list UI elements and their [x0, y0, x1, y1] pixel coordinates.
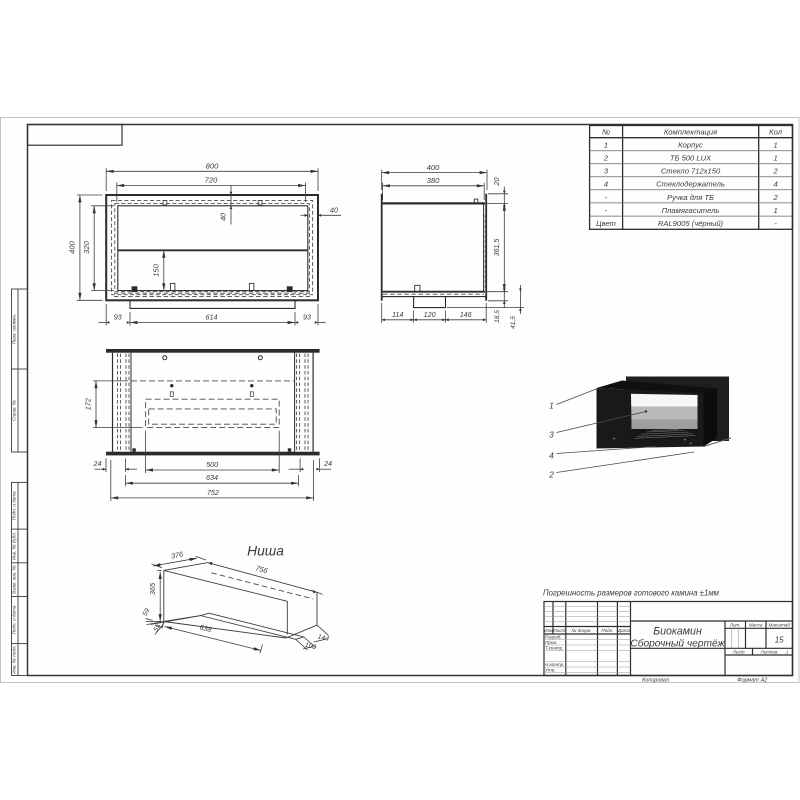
svg-text:Подп. и дата: Подп. и дата [12, 605, 17, 634]
svg-text:2: 2 [772, 167, 778, 176]
svg-text:41,5: 41,5 [510, 316, 517, 329]
svg-text:Корпус: Корпус [678, 141, 703, 150]
svg-text:Ручка для ТБ: Ручка для ТБ [667, 193, 714, 202]
svg-text:Формат: Формат [737, 678, 759, 684]
svg-text:Пламягаситель: Пламягаситель [662, 206, 720, 215]
svg-text:114: 114 [392, 310, 403, 319]
svg-text:Биокамин: Биокамин [653, 626, 702, 638]
svg-text:1: 1 [604, 141, 608, 150]
svg-text:24: 24 [323, 459, 332, 468]
svg-text:Справ. №: Справ. № [12, 400, 17, 421]
svg-text:Подп. и дата: Подп. и дата [12, 491, 17, 520]
svg-text:Масштаб: Масштаб [768, 622, 790, 627]
svg-text:Стеклодержатель: Стеклодержатель [656, 180, 725, 189]
svg-text:RAL9005 (чёрный): RAL9005 (чёрный) [658, 219, 724, 228]
svg-text:1: 1 [786, 649, 789, 654]
svg-text:4: 4 [773, 180, 777, 189]
svg-text:Листов: Листов [760, 649, 778, 654]
svg-text:120: 120 [424, 310, 436, 319]
svg-text:Дата: Дата [617, 628, 631, 633]
svg-text:24: 24 [93, 459, 102, 468]
svg-text:Разраб.: Разраб. [545, 635, 562, 640]
svg-text:Погрешность размеров готового: Погрешность размеров готового камина ±1м… [543, 589, 720, 598]
svg-text:1: 1 [773, 206, 777, 215]
svg-text:Пров.: Пров. [545, 640, 557, 645]
svg-text:4: 4 [549, 451, 554, 461]
svg-text:2: 2 [603, 154, 609, 163]
svg-text:Т.контр.: Т.контр. [545, 646, 564, 651]
svg-text:Копировал: Копировал [642, 678, 669, 684]
svg-text:365: 365 [148, 582, 157, 595]
svg-text:Лит.: Лит. [729, 622, 741, 627]
svg-text:361,5: 361,5 [494, 239, 501, 257]
svg-text:Цвет: Цвет [596, 219, 616, 228]
svg-text:40: 40 [219, 213, 228, 221]
svg-text:1: 1 [773, 141, 777, 150]
svg-text:40: 40 [330, 205, 338, 214]
svg-text:380: 380 [427, 176, 440, 185]
svg-text:20: 20 [492, 178, 501, 187]
svg-text:Изм: Изм [544, 628, 553, 633]
svg-text:Н.контр.: Н.контр. [545, 662, 564, 667]
svg-text:2: 2 [548, 470, 554, 480]
svg-text:Утв.: Утв. [545, 668, 555, 673]
svg-text:172: 172 [84, 398, 93, 410]
svg-text:1: 1 [549, 401, 554, 411]
svg-text:Комплектация: Комплектация [664, 128, 717, 137]
svg-text:А2: А2 [760, 678, 768, 684]
svg-text:146: 146 [460, 310, 472, 319]
svg-text:752: 752 [207, 488, 219, 497]
svg-text:4: 4 [604, 180, 608, 189]
svg-text:800: 800 [206, 162, 219, 171]
svg-text:Взам. инв. №: Взам. инв. № [12, 565, 17, 593]
svg-text:Подп.: Подп. [601, 628, 613, 633]
svg-text:Лист: Лист [732, 649, 745, 654]
svg-text:634: 634 [206, 473, 218, 482]
svg-text:15: 15 [775, 636, 784, 645]
svg-text:3: 3 [549, 430, 554, 440]
svg-text:Кол: Кол [769, 128, 783, 137]
svg-text:Масса: Масса [749, 622, 763, 627]
svg-text:93: 93 [114, 313, 122, 322]
svg-text:Стекло 712х150: Стекло 712х150 [661, 167, 721, 176]
svg-text:1: 1 [773, 154, 777, 163]
svg-text:18,5: 18,5 [494, 310, 501, 323]
svg-text:400: 400 [68, 240, 77, 253]
svg-text:150: 150 [151, 263, 160, 276]
svg-text:Лист: Лист [552, 628, 565, 633]
svg-text:ТБ 500 LUX: ТБ 500 LUX [670, 154, 712, 163]
svg-text:400: 400 [427, 163, 440, 172]
svg-text:№: № [602, 128, 610, 137]
svg-text:Перв. примен.: Перв. примен. [12, 314, 17, 345]
svg-text:№ докум.: № докум. [571, 628, 591, 633]
svg-text:2: 2 [772, 193, 778, 202]
svg-text:Инв. № дубл.: Инв. № дубл. [12, 532, 17, 560]
svg-text:320: 320 [82, 240, 91, 253]
svg-text:93: 93 [303, 313, 311, 322]
svg-text:500: 500 [206, 460, 218, 469]
svg-text:Инв. № подл.: Инв. № подл. [12, 645, 17, 674]
svg-text:720: 720 [205, 176, 218, 185]
svg-text:Сборочный чертёж: Сборочный чертёж [630, 638, 725, 650]
svg-text:614: 614 [206, 313, 218, 322]
svg-text:Ниша: Ниша [247, 544, 284, 559]
